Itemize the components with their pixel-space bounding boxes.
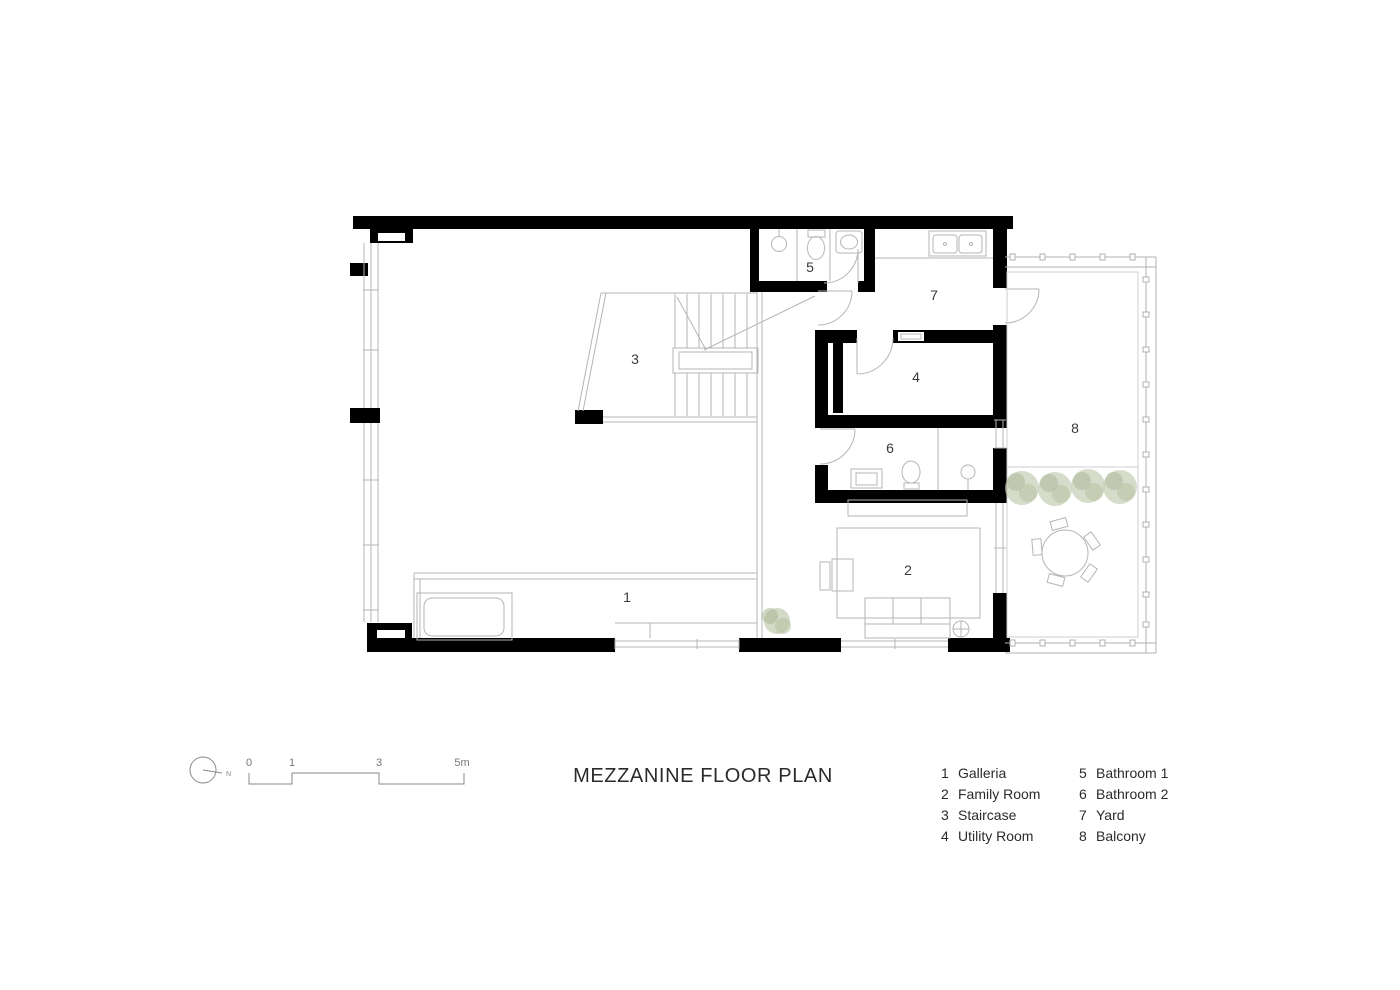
interior-walls: [575, 229, 1007, 503]
room-label-balcony: 8: [1071, 420, 1079, 436]
legend-number: 4: [941, 826, 958, 847]
scale-tick-1: 1: [289, 757, 295, 769]
galleria-lines: [414, 573, 757, 640]
legend-number: 3: [941, 805, 958, 826]
room-label-staircase: 3: [631, 351, 639, 367]
floor-plan-page: 1 2 3 4 5 6 7 8 N 0 1 3 5m MEZZANINE FLO…: [0, 0, 1400, 990]
legend-item: 2Family Room: [941, 784, 1040, 805]
legend-label: Family Room: [958, 786, 1040, 802]
legend-label: Utility Room: [958, 828, 1033, 844]
floor-plan-drawing: 1 2 3 4 5 6 7 8 N 0 1 3 5m: [0, 0, 1400, 990]
legend-label: Bathroom 1: [1096, 765, 1168, 781]
scale-tick-0: 0: [246, 757, 252, 769]
room-label-family-room: 2: [904, 562, 912, 578]
north-arrow: N: [190, 757, 231, 783]
legend-label: Yard: [1096, 807, 1125, 823]
room-label-yard: 7: [930, 287, 938, 303]
legend-item: 4Utility Room: [941, 826, 1040, 847]
legend-number: 5: [1079, 763, 1096, 784]
legend-item: 3Staircase: [941, 805, 1040, 826]
scale-bar: 0 1 3 5m: [246, 757, 470, 784]
legend-item: 1Galleria: [941, 763, 1040, 784]
legend-number: 7: [1079, 805, 1096, 826]
legend-label: Staircase: [958, 807, 1016, 823]
bathroom-2-fixtures: [851, 428, 975, 490]
scale-tick-5m: 5m: [454, 757, 469, 769]
legend-number: 1: [941, 763, 958, 784]
yard-counter: [875, 231, 993, 258]
scale-tick-3: 3: [376, 757, 382, 769]
legend-label: Galleria: [958, 765, 1006, 781]
legend-number: 2: [941, 784, 958, 805]
legend-item: 5Bathroom 1: [1079, 763, 1168, 784]
north-letter: N: [226, 771, 231, 778]
legend-item: 8Balcony: [1079, 826, 1168, 847]
balcony-hedge-icons: [1005, 469, 1137, 506]
windows: [363, 243, 1006, 649]
legend-item: 7Yard: [1079, 805, 1168, 826]
balcony-furniture: [1032, 518, 1100, 587]
legend-column-1: 1Galleria 2Family Room 3Staircase 4Utili…: [941, 763, 1040, 847]
room-number-labels: 1 2 3 4 5 6 7 8: [623, 259, 1079, 605]
legend-label: Balcony: [1096, 828, 1146, 844]
room-label-galleria: 1: [623, 589, 631, 605]
legend-label: Bathroom 2: [1096, 786, 1168, 802]
staircase: [578, 292, 815, 638]
room-label-utility: 4: [912, 369, 920, 385]
room-label-bathroom-1: 5: [806, 259, 814, 275]
page-title: MEZZANINE FLOOR PLAN: [503, 765, 903, 788]
legend-number: 8: [1079, 826, 1096, 847]
legend-column-2: 5Bathroom 1 6Bathroom 2 7Yard 8Balcony: [1079, 763, 1168, 847]
family-room-furniture: [820, 500, 980, 638]
room-label-bathroom-2: 6: [886, 440, 894, 456]
legend-item: 6Bathroom 2: [1079, 784, 1168, 805]
exterior-walls: [350, 216, 1013, 652]
legend-number: 6: [1079, 784, 1096, 805]
tree-icon: [762, 608, 791, 634]
